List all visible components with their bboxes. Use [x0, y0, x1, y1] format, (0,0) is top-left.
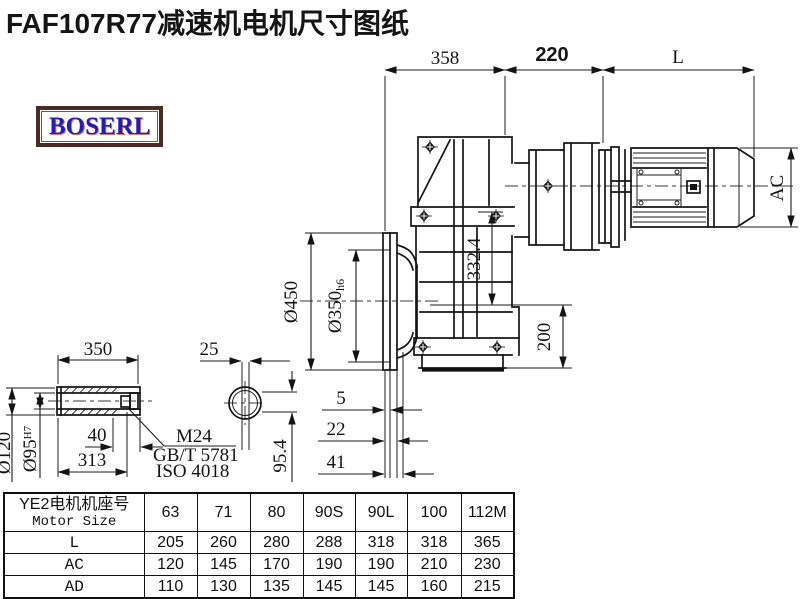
motor-size-header-cell: YE2电机机座号 Motor Size — [4, 493, 144, 532]
value-cell: 288 — [303, 532, 355, 554]
value-cell: 260 — [197, 532, 250, 554]
size-col-100: 100 — [407, 493, 461, 532]
dim-220: 220 — [535, 44, 568, 66]
size-col-112M: 112M — [461, 493, 514, 532]
row-label-L: L — [4, 532, 144, 554]
dimension-lines — [12, 70, 791, 482]
row-label-AC: AC — [4, 554, 144, 576]
value-cell: 318 — [407, 532, 461, 554]
value-cell: 145 — [355, 576, 407, 599]
input-adapter — [515, 143, 631, 250]
value-cell: 135 — [250, 576, 303, 599]
label-thread-std2: ISO 4018 — [156, 461, 229, 482]
dim-22: 22 — [327, 419, 346, 440]
dim-313: 313 — [78, 450, 107, 471]
dim-AC: AC — [767, 175, 788, 201]
value-cell: 145 — [303, 576, 355, 599]
row-label-AD: AD — [4, 576, 144, 599]
motor-size-title-cn: YE2电机机座号 — [5, 496, 144, 514]
dim-25: 25 — [200, 339, 219, 360]
value-cell: 130 — [197, 576, 250, 599]
dim-350: 350 — [84, 339, 113, 360]
size-col-63: 63 — [144, 493, 197, 532]
dim-40: 40 — [88, 425, 107, 446]
value-cell: 230 — [461, 554, 514, 576]
value-cell: 210 — [407, 554, 461, 576]
value-cell: 190 — [303, 554, 355, 576]
dim-5: 5 — [336, 388, 346, 409]
extension-lines — [6, 76, 798, 478]
table-header-row: YE2电机机座号 Motor Size 63 71 80 90S 90L 100… — [4, 493, 514, 532]
dim-95h7: Ø95H7 — [20, 425, 41, 472]
size-col-71: 71 — [197, 493, 250, 532]
dim-450: Ø450 — [281, 281, 302, 323]
value-cell: 110 — [144, 576, 197, 599]
value-cell: 365 — [461, 532, 514, 554]
dim-350h6: Ø350h6 — [325, 279, 347, 333]
size-col-80: 80 — [250, 493, 303, 532]
value-cell: 318 — [355, 532, 407, 554]
value-cell: 170 — [250, 554, 303, 576]
dim-L: L — [672, 47, 684, 68]
dim-332: 332.4 — [464, 237, 485, 280]
label-thread: M24 — [176, 426, 212, 447]
dimension-labels: 358 220 L AC Ø450 Ø350h6 332.4 200 350 2… — [0, 44, 788, 482]
dim-120: Ø120 — [0, 432, 15, 474]
value-cell: 145 — [197, 554, 250, 576]
dim-358: 358 — [431, 48, 460, 69]
size-col-90S: 90S — [303, 493, 355, 532]
motor-size-title-en: Motor Size — [5, 514, 144, 530]
size-col-90L: 90L — [355, 493, 407, 532]
value-cell: 205 — [144, 532, 197, 554]
table-row-AD: AD 110 130 135 145 145 160 215 — [4, 576, 514, 599]
dim-200: 200 — [534, 323, 555, 352]
table-row-AC: AC 120 145 170 190 190 210 230 — [4, 554, 514, 576]
motor-view — [631, 148, 754, 227]
value-cell: 160 — [407, 576, 461, 599]
value-cell: 120 — [144, 554, 197, 576]
table-row-L: L 205 260 280 288 318 318 365 — [4, 532, 514, 554]
motor-size-table: YE2电机机座号 Motor Size 63 71 80 90S 90L 100… — [3, 492, 515, 599]
value-cell: 190 — [355, 554, 407, 576]
value-cell: 280 — [250, 532, 303, 554]
dim-95-4: 95.4 — [270, 439, 291, 473]
value-cell: 215 — [461, 576, 514, 599]
dim-41: 41 — [327, 452, 346, 473]
